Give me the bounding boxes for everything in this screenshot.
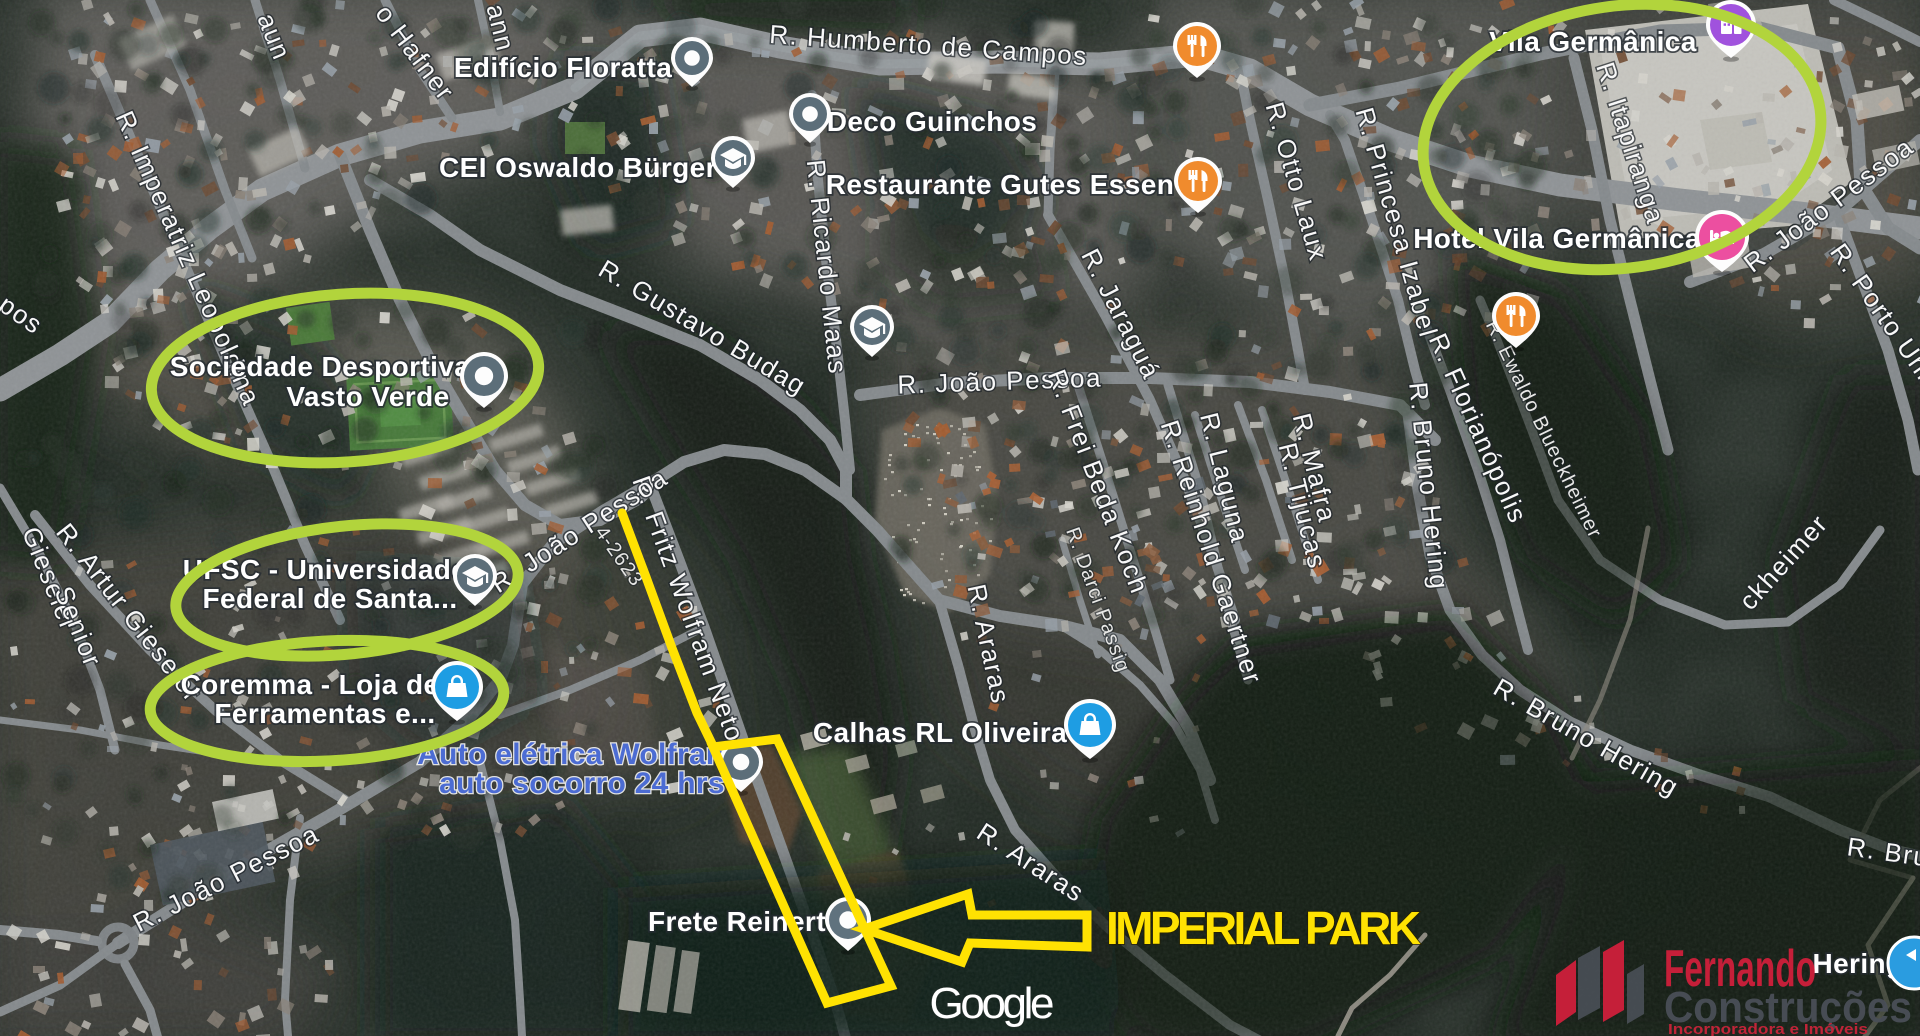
svg-text:Incorporadora e Imóveis: Incorporadora e Imóveis xyxy=(1668,1021,1868,1036)
svg-text:Restaurante Gutes Essen: Restaurante Gutes Essen xyxy=(826,169,1174,200)
svg-text:Coremma - Loja de: Coremma - Loja de xyxy=(181,669,440,700)
svg-text:Federal de Santa...: Federal de Santa... xyxy=(202,583,457,614)
svg-text:Ferramentas e...: Ferramentas e... xyxy=(214,698,435,729)
svg-text:Calhas RL Oliveira: Calhas RL Oliveira xyxy=(813,717,1067,748)
svg-text:Edifício Floratta: Edifício Floratta xyxy=(454,52,672,83)
svg-text:CEI Oswaldo Bürger: CEI Oswaldo Bürger xyxy=(439,152,717,183)
svg-text:auto socorro 24 hrs: auto socorro 24 hrs xyxy=(439,767,725,800)
svg-text:Deco Guinchos: Deco Guinchos xyxy=(827,106,1038,137)
svg-text:IMPERIAL PARK: IMPERIAL PARK xyxy=(1106,902,1422,954)
svg-text:Google: Google xyxy=(930,979,1055,1028)
svg-text:Sociedade Desportiva: Sociedade Desportiva xyxy=(170,351,471,382)
svg-text:Vasto Verde: Vasto Verde xyxy=(286,381,449,412)
